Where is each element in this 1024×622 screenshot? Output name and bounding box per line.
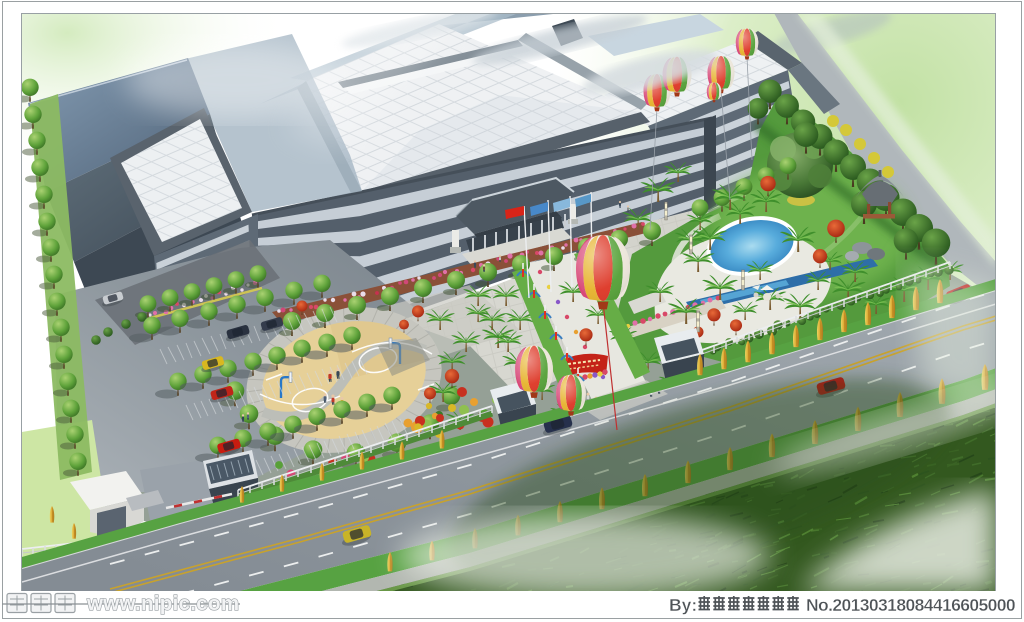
svg-text:By:: By: <box>669 595 697 615</box>
svg-text:No.20130318084416605000: No.20130318084416605000 <box>806 595 1016 615</box>
svg-text:www.nipic.com: www.nipic.com <box>86 592 239 615</box>
